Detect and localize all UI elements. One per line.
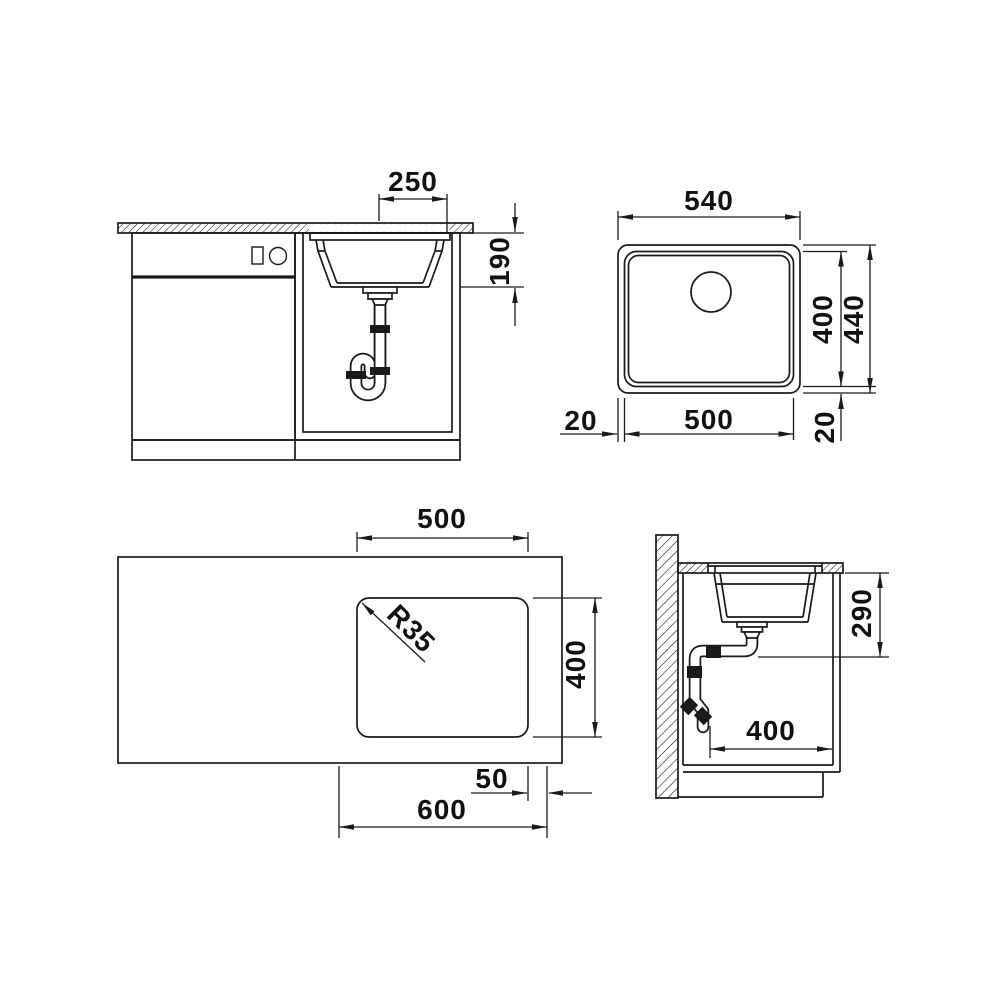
control-knob xyxy=(270,248,287,265)
technical-drawing-sheet: 250 190 540 400 440 20 500 20 500 R35 40… xyxy=(0,0,1000,1000)
dim-top-rim-bottom: 20 xyxy=(811,410,839,443)
dim-side-cabinet-depth: 400 xyxy=(746,717,796,745)
side-section-view xyxy=(656,535,889,798)
drain-hole xyxy=(691,272,731,312)
dim-front-drain-offset: 250 xyxy=(388,168,438,196)
sink-flange xyxy=(310,233,450,240)
dim-top-outer-width: 540 xyxy=(684,187,734,215)
worktop-plan-view xyxy=(118,532,602,838)
dim-plan-edge-offset: 50 xyxy=(475,765,508,793)
dim-front-bowl-depth: 190 xyxy=(486,236,514,286)
drain-trap-front xyxy=(346,287,397,395)
plinth xyxy=(132,440,460,460)
dim-top-outer-length: 440 xyxy=(840,294,868,344)
cabinet-side xyxy=(678,573,840,797)
dim-plan-cutout-length: 400 xyxy=(562,639,590,689)
control-rect xyxy=(252,247,263,264)
dim-side-installation-depth: 290 xyxy=(848,588,876,638)
front-elevation-view xyxy=(118,194,524,460)
dim-plan-cabinet-width: 600 xyxy=(417,796,467,824)
wall-section xyxy=(656,535,678,798)
dim-top-inner-width: 500 xyxy=(684,406,734,434)
drain-trap-side xyxy=(680,622,767,727)
sink-bowl-front xyxy=(316,240,444,287)
dim-plan-cutout-width: 500 xyxy=(417,505,467,533)
dim-top-rim-left: 20 xyxy=(564,407,597,435)
drawing-linework xyxy=(0,0,1000,1000)
sink-outer-edge xyxy=(618,245,800,393)
left-cabinet xyxy=(132,233,295,440)
sink-bowl-side xyxy=(714,573,816,622)
dim-top-inner-length: 400 xyxy=(809,294,837,344)
worktop xyxy=(118,557,562,763)
